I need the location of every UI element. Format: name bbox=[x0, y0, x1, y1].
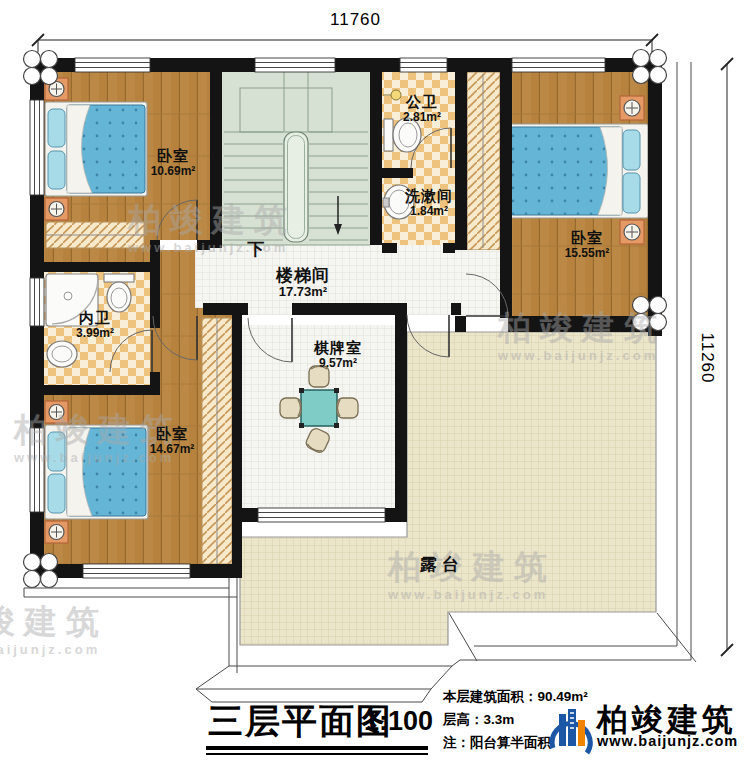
window-bath-top bbox=[400, 58, 447, 72]
toilet-tank bbox=[104, 274, 134, 282]
bed-top-left bbox=[45, 102, 147, 196]
brand-logo: 柏竣建筑 www.baijunjz.com bbox=[545, 704, 738, 762]
window-stairs-top bbox=[255, 58, 335, 72]
room-label-bedroom-right: 卧室 15.55m² bbox=[565, 230, 610, 260]
chair bbox=[337, 398, 358, 418]
brand-website: www.baijunjz.com bbox=[597, 733, 738, 749]
brand-name: 柏竣建筑 bbox=[597, 704, 738, 735]
room-label-public-bath: 公卫 2.81m² bbox=[403, 94, 441, 124]
bed-right bbox=[508, 124, 648, 218]
room-label-inner-bath: 内卫 3.99m² bbox=[76, 310, 114, 340]
balcony-note: 注：阳台算半面积 bbox=[443, 734, 551, 752]
title-underline-thick bbox=[206, 746, 428, 750]
title-underline-thin bbox=[206, 753, 428, 755]
dimension-right: 11260 bbox=[697, 332, 717, 383]
floor-plan-drawing bbox=[0, 0, 750, 776]
room-label-terrace: 露台 bbox=[420, 553, 464, 576]
window-bedroom-bl-bottom bbox=[83, 564, 190, 578]
bed-bottom-left bbox=[45, 425, 148, 519]
chair bbox=[280, 398, 301, 418]
brand-logo-icon bbox=[545, 704, 593, 762]
room-label-game-room: 棋牌室 9.57m² bbox=[314, 340, 362, 370]
window-bedroom-tl-top bbox=[75, 58, 150, 72]
dimension-top: 11760 bbox=[330, 10, 381, 30]
floor-height-note: 层高：3.3m bbox=[443, 711, 514, 729]
room-label-washroom: 洗漱间 1.84m² bbox=[405, 188, 453, 218]
window-inner-bath-left bbox=[30, 278, 44, 326]
room-label-bedroom-bottom-left: 卧室 14.67m² bbox=[150, 426, 195, 456]
room-label-stairwell: 楼梯间 17.73m² bbox=[276, 266, 330, 300]
floor-nook bbox=[455, 250, 500, 316]
floor-plan-page: 柏竣建筑 www.baijunjz.com 柏竣建筑 www.baijunjz.… bbox=[0, 0, 750, 776]
plan-scale: 1:100 bbox=[364, 706, 433, 737]
room-label-bedroom-top-left: 卧室 10.69m² bbox=[151, 148, 196, 178]
toilet-tank bbox=[384, 119, 393, 151]
game-table bbox=[301, 390, 337, 426]
wall-lamp bbox=[391, 90, 401, 100]
window-bedroom-r-top bbox=[512, 58, 605, 72]
window-bedroom-tl-left bbox=[30, 100, 44, 195]
window-bedroom-bl-left bbox=[30, 428, 44, 512]
window-game-room-bottom bbox=[258, 508, 385, 522]
stairs-down-label: 下 bbox=[248, 238, 265, 261]
